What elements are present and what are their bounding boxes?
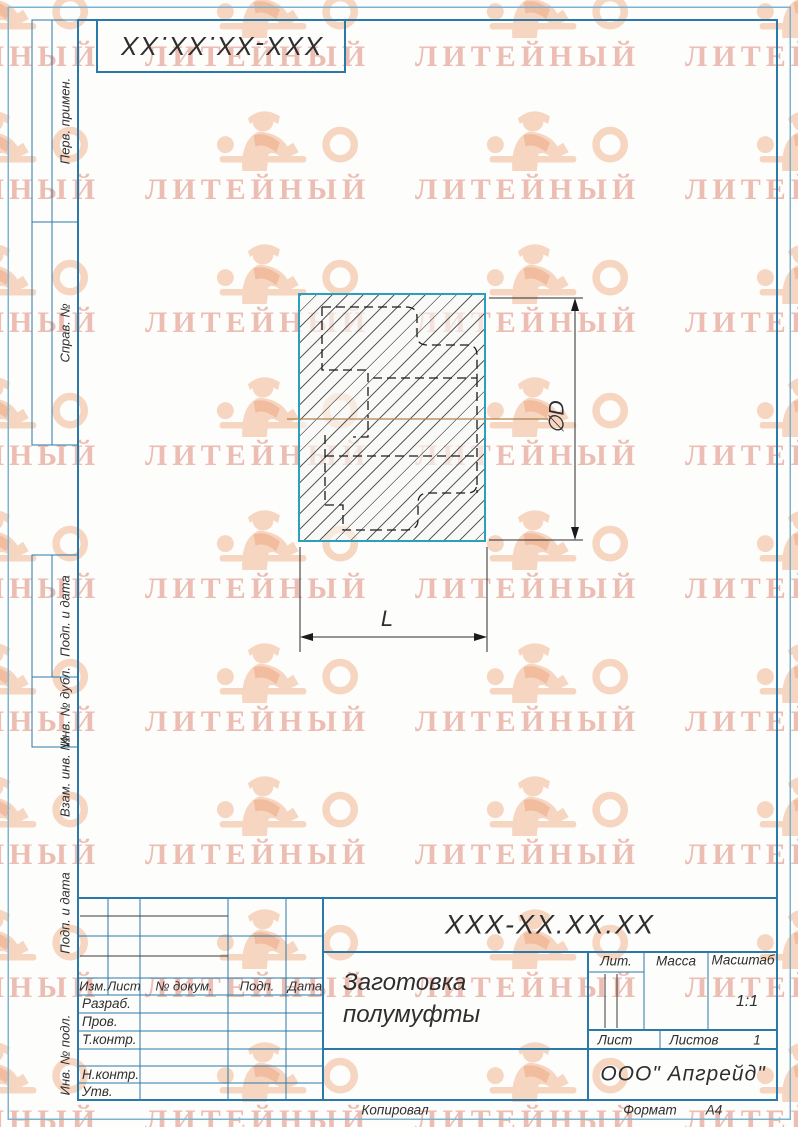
drawing-sheet: ЛИТЕЙНЫЙЛИТЕЙНЫЙЛИТЕЙНЫЙЛИТЕЙНЫЙЛИТЕЙНЫЙ… [0,0,798,1127]
part-name-line1: Заготовка [343,971,466,995]
title-row-utv: Утв. [82,1085,113,1099]
sidebar-label-perv-primen: Перв. примен. [59,20,72,222]
footer-kopiroval: Копировал [361,1103,428,1117]
corner-stamp-designation: XXX-XX.XX.XX [119,33,322,59]
title-company: ООО" Апгрейд" [600,1064,765,1085]
title-designation: XXX-XX.XX.XX [445,912,655,939]
title-header-izm: Изм. [79,980,107,993]
title-row-nkontr: Н.контр. [82,1068,139,1082]
sidebar-label-inv-no-podl: Инв. № подл. [59,1010,72,1100]
title-row-tkontr: Т.контр. [82,1033,136,1047]
title-listov-label: Листов [669,1033,718,1047]
title-header-podp: Подп. [240,980,275,993]
title-massa-label: Масса [656,954,696,968]
title-list-label: Лист [598,1033,633,1047]
title-header-data: Дата [288,980,322,993]
title-lit-label: Лит. [600,954,632,968]
title-row-prov: Пров. [82,1015,118,1029]
part-name-line2: полумуфты [343,1003,480,1027]
title-masshtab-label: Масштаб [711,953,774,967]
title-listov-value: 1 [753,1033,761,1047]
sidebar-label-podp-i-data: Подп. и дата [59,555,72,677]
sidebar-label-sprav-no: Справ. № [59,222,72,445]
dimension-arrows [300,298,579,641]
footer-format-value: А4 [706,1103,723,1117]
title-header-list: Лист [107,980,140,993]
dimension-label-length: L [381,608,393,630]
dimension-label-diameter: ∅D [547,400,568,433]
title-row-razrab: Разраб. [82,997,131,1011]
footer-format-label: Формат [623,1103,677,1117]
sidebar-label-podp-i-data-2: Подп. и дата [59,817,72,1010]
sidebar-label-vzam-inv-no: Взам. инв. № [59,747,72,817]
title-scale-value: 1:1 [736,994,758,1010]
dimension-lines [300,298,583,652]
title-header-dokum: № докум. [155,980,212,993]
